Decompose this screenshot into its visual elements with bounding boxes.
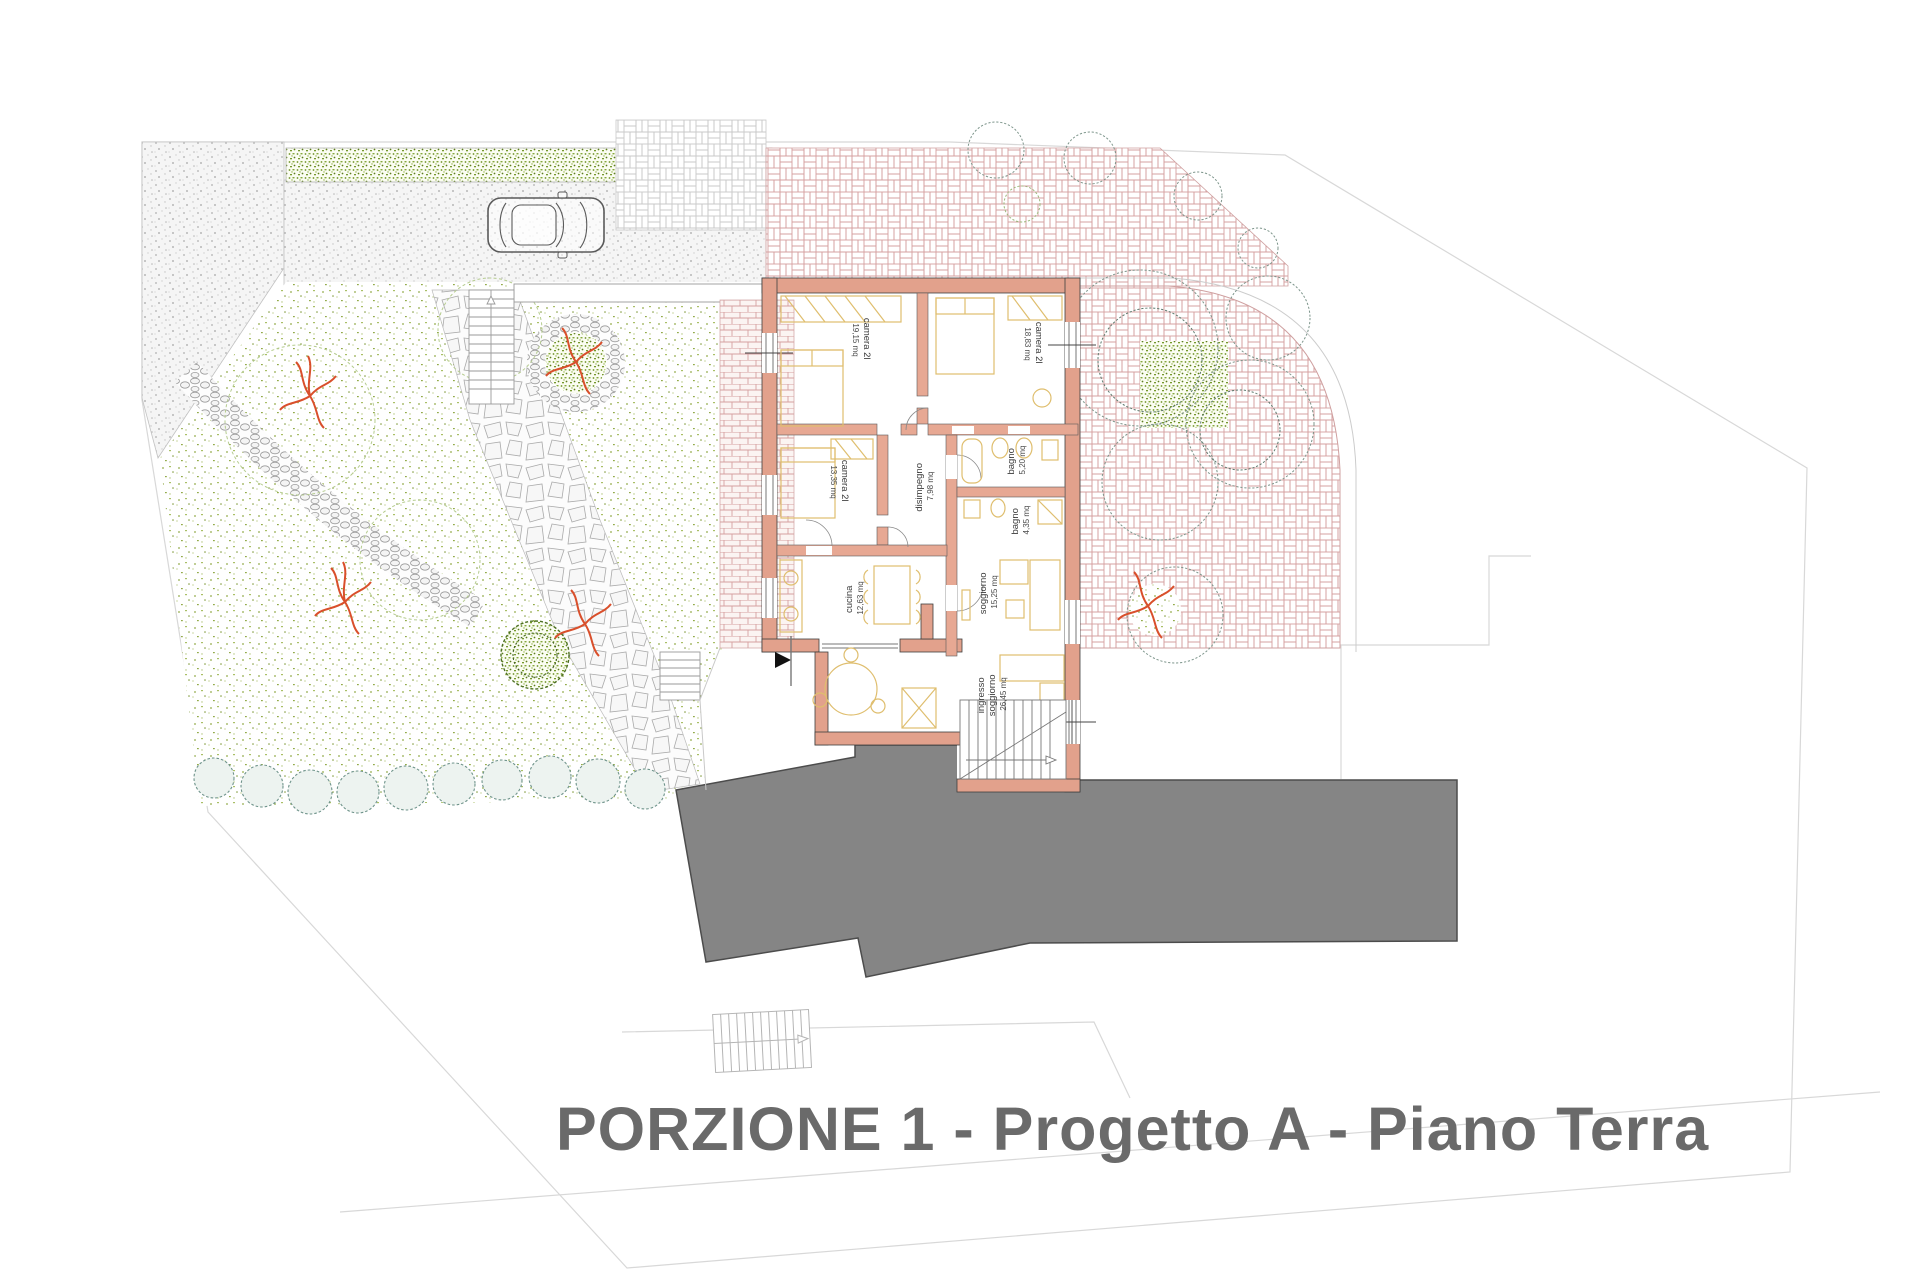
room-label-ingresso-soggiorno: ingresso soggiorno 26,45 mq bbox=[976, 672, 1008, 716]
patio-green-spot bbox=[1129, 584, 1181, 636]
bush-dark bbox=[501, 621, 569, 689]
room-label-cucina: cucina 12,63 mq bbox=[844, 581, 865, 614]
site-plan-drawing: camera 2l 19,15 mq camera 2l 18,83 mq ca… bbox=[0, 0, 1920, 1280]
outdoor-stairs-bottom bbox=[713, 1010, 812, 1073]
terrace-steps bbox=[660, 652, 700, 700]
neighbor-outline bbox=[1341, 556, 1531, 779]
front-brick-band bbox=[720, 300, 794, 648]
right-patio bbox=[1078, 278, 1356, 652]
room-label-camera-2: camera 2l 18,83 mq bbox=[1023, 322, 1044, 366]
room-label-soggiorno: soggiorno 15,25 mq bbox=[978, 570, 999, 614]
car-top-view bbox=[488, 192, 604, 258]
room-label-camera-1: camera 2l 19,15 mq bbox=[851, 318, 872, 362]
room-label-bagno-1: bagno 5,20 mq bbox=[1006, 445, 1027, 474]
boundary-path-line bbox=[622, 1022, 1130, 1098]
room-label-camera-3: camera 2l 13,35 mq bbox=[829, 460, 850, 504]
garden bbox=[160, 278, 766, 806]
room-label-bagno-2: bagno 4,35 mq bbox=[1010, 505, 1031, 534]
hedge-square bbox=[1140, 341, 1228, 428]
building: camera 2l 19,15 mq camera 2l 18,83 mq ca… bbox=[720, 278, 1096, 792]
plan-title: PORZIONE 1 - Progetto A - Piano Terra bbox=[556, 1094, 1856, 1164]
paving-gray-block bbox=[616, 120, 766, 230]
garden-stairs bbox=[469, 290, 514, 404]
